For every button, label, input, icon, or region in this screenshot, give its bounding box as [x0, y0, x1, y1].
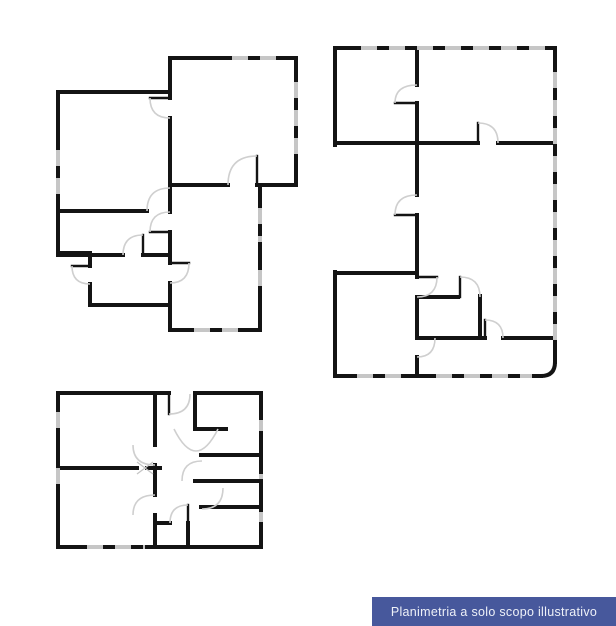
plan-lower-left — [58, 393, 261, 547]
disclaimer-banner: Planimetria a solo scopo illustrativo — [372, 597, 616, 626]
disclaimer-text: Planimetria a solo scopo illustrativo — [391, 605, 597, 619]
floor-plans-svg — [0, 0, 616, 626]
floorplan-sheet: Planimetria a solo scopo illustrativo — [0, 0, 616, 626]
plan-upper-left — [58, 58, 296, 330]
plan-upper-right — [335, 48, 555, 376]
